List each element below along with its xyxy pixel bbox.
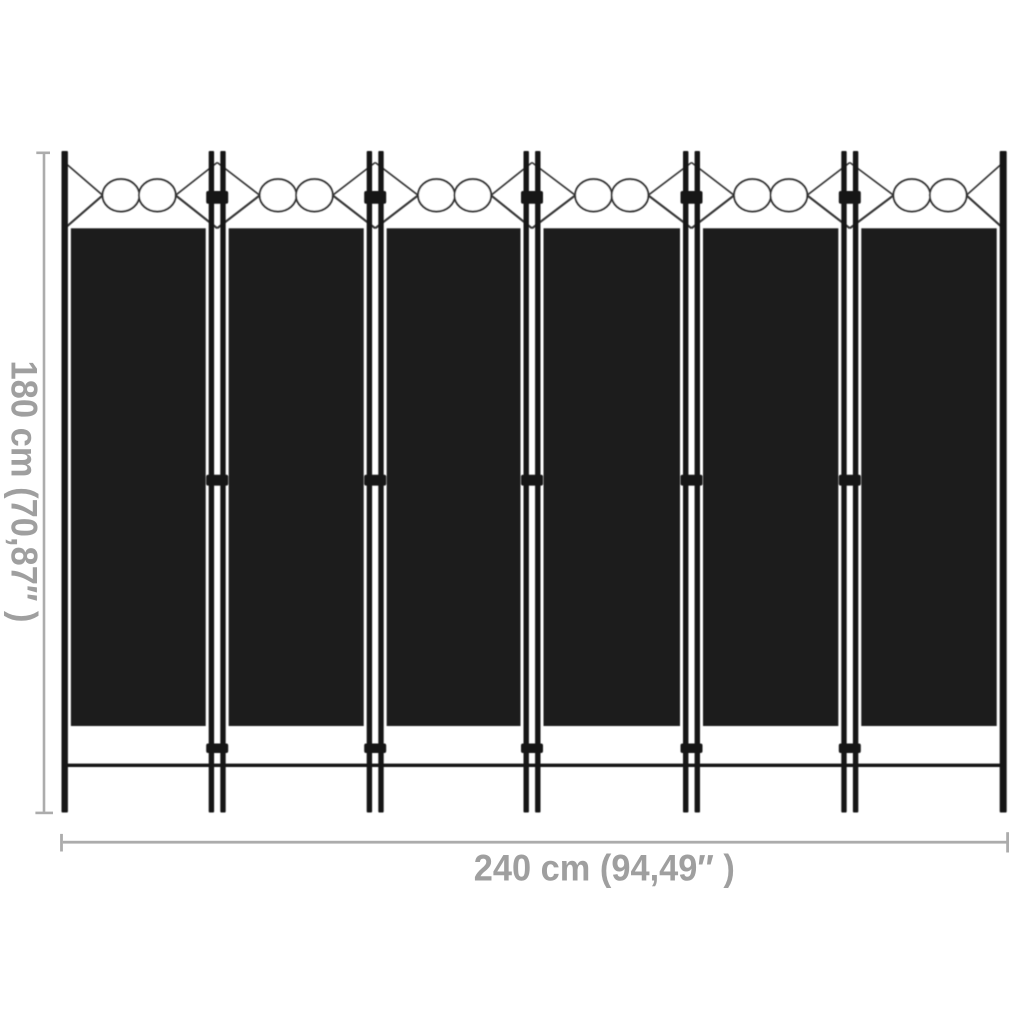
svg-text:240 cm (94,49″ ): 240 cm (94,49″ ) xyxy=(474,848,735,889)
svg-text:180 cm (70,87″ ): 180 cm (70,87″ ) xyxy=(4,361,45,623)
